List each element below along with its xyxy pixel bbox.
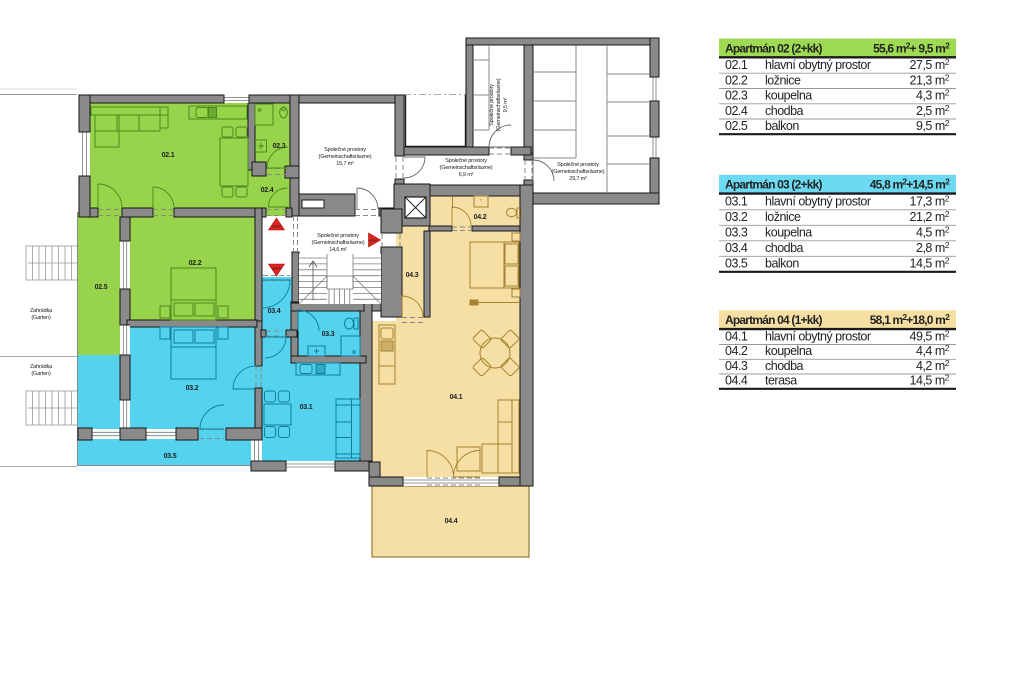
svg-text:4,3 m2: 4,3 m2 bbox=[916, 88, 950, 103]
svg-text:03.1: 03.1 bbox=[725, 195, 748, 209]
svg-text:21,3 m2: 21,3 m2 bbox=[910, 72, 950, 87]
svg-text:Apartmán 04 (1+kk): Apartmán 04 (1+kk) bbox=[725, 313, 822, 327]
svg-text:VSTUP: VSTUP bbox=[272, 225, 281, 229]
svg-text:21,2 m2: 21,2 m2 bbox=[910, 209, 950, 224]
svg-text:chodba: chodba bbox=[765, 359, 804, 373]
svg-text:Společné prostory: Společné prostory bbox=[445, 158, 487, 164]
svg-text:04.4: 04.4 bbox=[445, 518, 458, 525]
svg-text:(Gemeinschaftsräume): (Gemeinschaftsräume) bbox=[552, 169, 605, 175]
svg-text:terasa: terasa bbox=[765, 374, 797, 388]
svg-text:6,9 m²: 6,9 m² bbox=[459, 172, 474, 178]
svg-text:04.1: 04.1 bbox=[450, 394, 463, 401]
svg-text:chodba: chodba bbox=[765, 104, 804, 118]
svg-text:(Garten): (Garten) bbox=[31, 315, 51, 321]
svg-text:Zahrádka: Zahrádka bbox=[30, 308, 53, 314]
svg-text:Společné prostory: Společné prostory bbox=[317, 233, 359, 239]
svg-text:(Gemeinschaftsräume): (Gemeinschaftsräume) bbox=[312, 240, 365, 246]
svg-text:hlavní obytný prostor: hlavní obytný prostor bbox=[765, 195, 871, 209]
svg-text:2,8 m2: 2,8 m2 bbox=[916, 240, 950, 255]
svg-text:14,5 m2: 14,5 m2 bbox=[910, 256, 950, 271]
svg-text:VSTUP: VSTUP bbox=[272, 267, 281, 271]
svg-text:03.5: 03.5 bbox=[164, 453, 177, 460]
svg-text:58,1 m2+18,0 m2: 58,1 m2+18,0 m2 bbox=[870, 312, 950, 327]
svg-text:koupelna: koupelna bbox=[765, 89, 812, 103]
svg-text:(Gemeinschaftsräume): (Gemeinschaftsräume) bbox=[496, 78, 502, 131]
svg-text:03.2: 03.2 bbox=[725, 210, 748, 224]
svg-text:02.2: 02.2 bbox=[725, 73, 748, 87]
svg-text:(Gemeinschaftsräume): (Gemeinschaftsräume) bbox=[319, 154, 372, 160]
svg-text:04.2: 04.2 bbox=[474, 214, 487, 221]
svg-text:15,7 m²: 15,7 m² bbox=[336, 161, 354, 167]
svg-text:04.2: 04.2 bbox=[725, 344, 748, 358]
svg-text:4,5 m2: 4,5 m2 bbox=[916, 225, 950, 240]
svg-text:2,5 m2: 2,5 m2 bbox=[916, 103, 950, 118]
svg-text:03.4: 03.4 bbox=[725, 241, 748, 255]
svg-text:03.3: 03.3 bbox=[725, 226, 748, 240]
svg-text:45,8 m2+14,5 m2: 45,8 m2+14,5 m2 bbox=[870, 177, 950, 192]
svg-text:4,2 m2: 4,2 m2 bbox=[916, 358, 950, 373]
svg-text:55,6 m2+ 9,5 m2: 55,6 m2+ 9,5 m2 bbox=[873, 40, 950, 55]
svg-text:04.1: 04.1 bbox=[725, 329, 748, 343]
svg-text:04.3: 04.3 bbox=[406, 272, 419, 279]
svg-text:04.3: 04.3 bbox=[725, 359, 748, 373]
svg-text:hlavní obytný prostor: hlavní obytný prostor bbox=[765, 58, 871, 72]
svg-text:9,5 m²: 9,5 m² bbox=[503, 97, 509, 112]
svg-text:Společné prostory: Společné prostory bbox=[324, 147, 366, 153]
svg-text:hlavní obytný prostor: hlavní obytný prostor bbox=[765, 329, 871, 343]
svg-text:ložnice: ložnice bbox=[765, 210, 801, 224]
svg-text:02.5: 02.5 bbox=[95, 284, 108, 291]
svg-text:14,5 m2: 14,5 m2 bbox=[910, 373, 950, 388]
svg-text:03.3: 03.3 bbox=[322, 331, 335, 338]
svg-text:02.3: 02.3 bbox=[273, 143, 286, 150]
svg-text:9,5 m2: 9,5 m2 bbox=[916, 118, 950, 133]
svg-text:4,4 m2: 4,4 m2 bbox=[916, 343, 950, 358]
svg-text:(Gemeinschaftsräume): (Gemeinschaftsräume) bbox=[440, 165, 493, 171]
svg-text:Zahrádka: Zahrádka bbox=[30, 364, 53, 370]
svg-text:02.4: 02.4 bbox=[261, 187, 274, 194]
svg-text:49,5 m2: 49,5 m2 bbox=[910, 328, 950, 343]
svg-text:02.5: 02.5 bbox=[725, 119, 748, 133]
svg-text:VSTUP: VSTUP bbox=[368, 239, 377, 243]
svg-text:koupelna: koupelna bbox=[765, 344, 812, 358]
svg-text:03.2: 03.2 bbox=[186, 385, 199, 392]
svg-text:17,3 m2: 17,3 m2 bbox=[910, 194, 950, 209]
svg-text:koupelna: koupelna bbox=[765, 226, 812, 240]
svg-text:03.5: 03.5 bbox=[725, 257, 748, 271]
svg-text:balkon: balkon bbox=[765, 257, 799, 271]
svg-text:02.1: 02.1 bbox=[725, 58, 748, 72]
svg-text:Apartmán 03 (2+kk): Apartmán 03 (2+kk) bbox=[725, 178, 822, 192]
svg-text:04.4: 04.4 bbox=[725, 374, 748, 388]
svg-text:(Garten): (Garten) bbox=[31, 371, 51, 377]
svg-text:02.3: 02.3 bbox=[725, 89, 748, 103]
svg-text:Společné prostory: Společné prostory bbox=[489, 84, 495, 126]
svg-text:ložnice: ložnice bbox=[765, 73, 801, 87]
svg-text:balkon: balkon bbox=[765, 119, 799, 133]
svg-text:02.4: 02.4 bbox=[725, 104, 748, 118]
svg-text:03.1: 03.1 bbox=[300, 404, 313, 411]
svg-text:14,6 m²: 14,6 m² bbox=[329, 247, 347, 253]
svg-text:02.1: 02.1 bbox=[162, 152, 175, 159]
svg-text:29,7 m²: 29,7 m² bbox=[569, 176, 587, 182]
svg-text:chodba: chodba bbox=[765, 241, 804, 255]
svg-text:Společné prostory: Společné prostory bbox=[557, 162, 599, 168]
svg-text:03.4: 03.4 bbox=[268, 308, 281, 315]
svg-text:27,5 m2: 27,5 m2 bbox=[910, 57, 950, 72]
svg-text:Apartmán 02 (2+kk): Apartmán 02 (2+kk) bbox=[725, 41, 822, 55]
svg-text:02.2: 02.2 bbox=[189, 260, 202, 267]
